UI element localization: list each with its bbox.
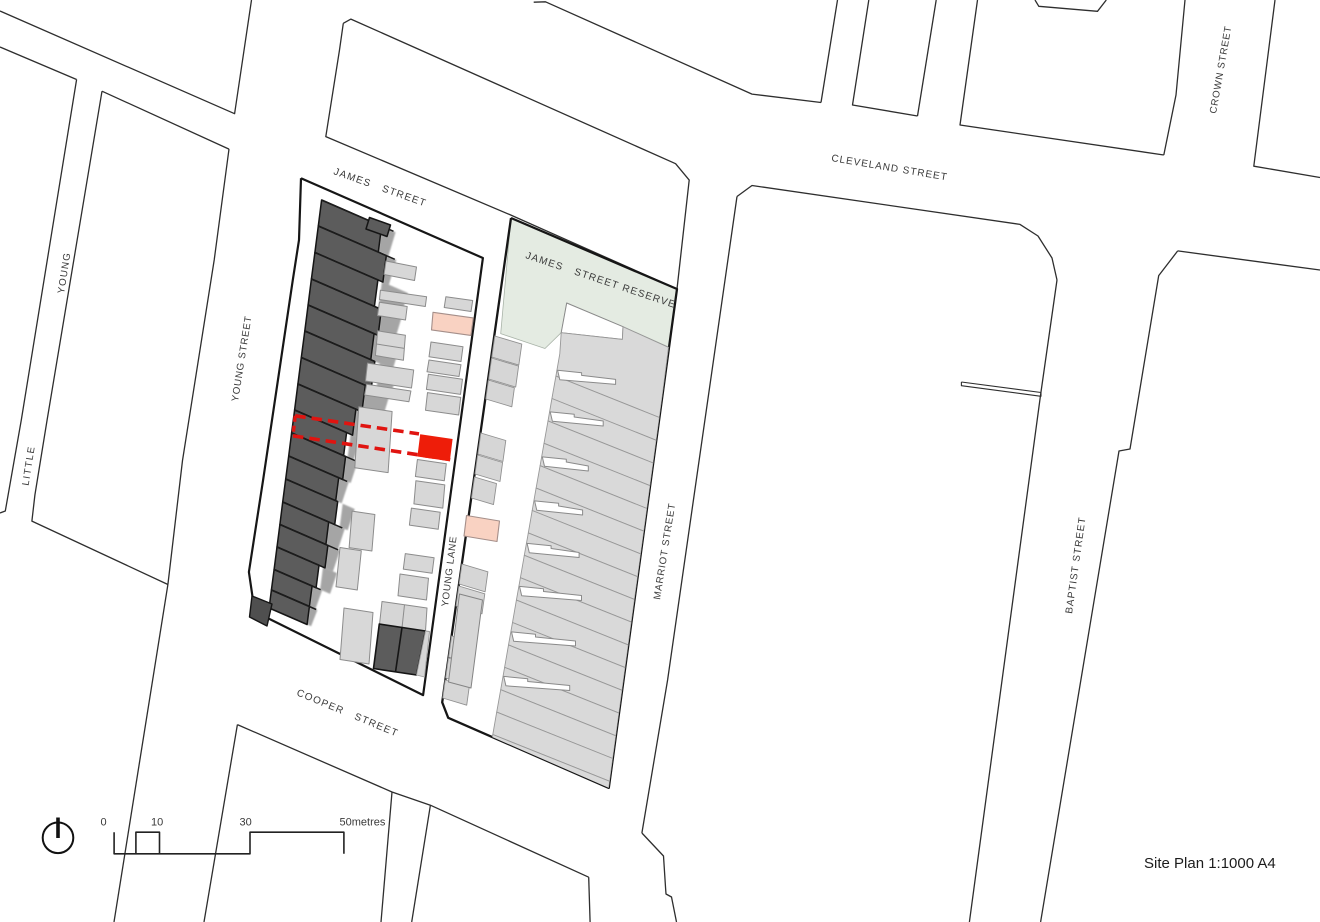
svg-text:Site Plan 1:1000 A4: Site Plan 1:1000 A4 — [1144, 855, 1276, 872]
svg-text:10: 10 — [151, 817, 163, 829]
svg-text:0: 0 — [101, 817, 107, 829]
svg-text:30: 30 — [240, 817, 252, 829]
svg-text:50metres: 50metres — [340, 817, 386, 829]
